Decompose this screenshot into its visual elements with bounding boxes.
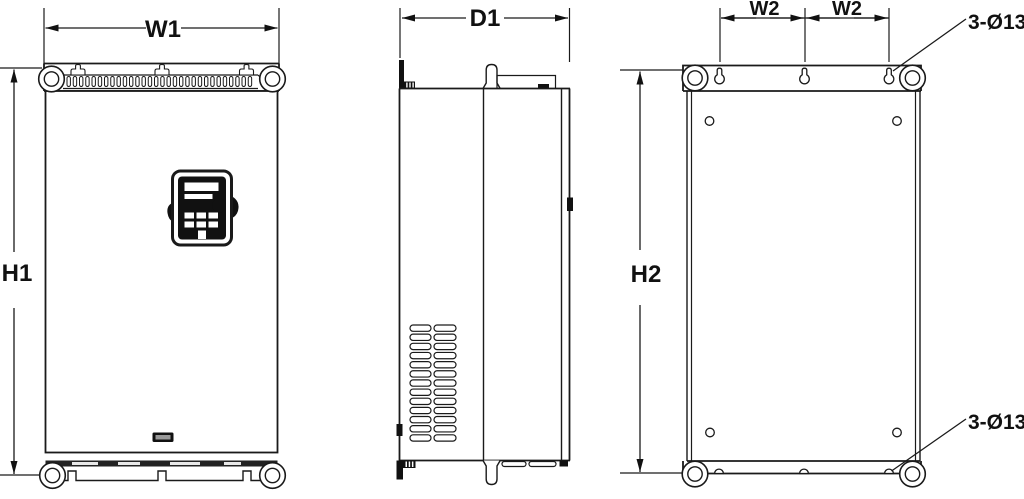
mounting-ring-inner: [45, 468, 59, 482]
screw-hole: [893, 428, 902, 437]
heatsink-vent-slot: [410, 343, 431, 349]
mounting-tab: [71, 65, 85, 76]
dimension-w1: W1: [44, 8, 279, 64]
heatsink-vent-slot: [410, 389, 431, 395]
heatsink-vent-slot: [434, 325, 456, 331]
clamp-slit: [412, 83, 413, 88]
heatsink-vent-slot: [410, 352, 431, 358]
bottom-slot: [529, 462, 556, 467]
heatsink-vent-slot: [410, 407, 431, 413]
heatsink-vent-slot: [410, 435, 431, 441]
heatsink-vent-slot: [434, 334, 456, 340]
heatsink-vent-slot: [434, 389, 456, 395]
heatsink-vent-slot: [434, 435, 456, 441]
keypad-button[interactable]: [197, 222, 207, 228]
heatsink-vent-slot: [434, 371, 456, 377]
label-hole-note-bottom: 3-Ø13: [968, 411, 1024, 434]
mounting-tab: [155, 65, 169, 76]
label-d1: D1: [470, 5, 501, 32]
vent-slot: [136, 77, 139, 87]
side-top-bracket: [399, 60, 404, 89]
mounting-ring-inner: [265, 72, 279, 86]
dimension-d1: D1: [400, 5, 570, 62]
base-band-slot: [118, 462, 140, 465]
vent-slot: [180, 77, 183, 87]
vent-slot: [211, 77, 214, 87]
vent-slot: [92, 77, 95, 87]
rear-top-strip: [683, 66, 921, 92]
keypad-button[interactable]: [209, 222, 219, 228]
rear-view: W2 W2 H2: [620, 0, 1024, 474]
vent-slot: [86, 77, 89, 87]
rear-panel: [687, 91, 920, 461]
vent-slot: [230, 77, 233, 87]
heatsink-vent-slot: [410, 334, 431, 340]
mounting-ring-inner: [44, 72, 58, 86]
dimension-drawing: W1 H1: [0, 0, 1024, 499]
keypad-button[interactable]: [185, 213, 195, 219]
heatsink-vent-slot: [410, 426, 431, 432]
heatsink-vent-slot: [434, 417, 456, 423]
keypad-button[interactable]: [197, 213, 207, 219]
leader-line: [892, 419, 967, 471]
heatsink-vent-slot: [434, 380, 456, 386]
screw-hole: [705, 117, 714, 126]
heatsink-vent-slot: [434, 343, 456, 349]
top-keyhole-tab-profile: [483, 65, 500, 89]
side-top-profile: [399, 60, 570, 89]
front-body: [46, 91, 278, 481]
mounting-ring-inner: [905, 71, 919, 85]
mounting-ring-inner: [688, 71, 702, 85]
base-band-slot: [170, 462, 200, 465]
heatsink-vent-slot: [410, 325, 431, 331]
front-top-bracket: [44, 64, 279, 92]
nameplate: [153, 433, 174, 443]
side-body: [397, 89, 574, 461]
keypad-button[interactable]: [209, 213, 219, 219]
vent-slot: [205, 77, 208, 87]
front-vent-slots: [67, 77, 252, 87]
vent-slot: [73, 77, 76, 87]
base-band-slot: [72, 462, 98, 465]
clamp-slit: [406, 83, 407, 88]
vent-slot: [148, 77, 151, 87]
screw-hole: [706, 428, 715, 437]
vent-slot: [248, 77, 251, 87]
vent-slot: [167, 77, 170, 87]
vent-slot: [223, 77, 226, 87]
clamp-slit: [409, 83, 410, 88]
vent-slot: [242, 77, 245, 87]
side-view: D1: [397, 5, 574, 485]
vent-slot: [192, 77, 195, 87]
heatsink-vent-slot: [410, 398, 431, 404]
bottom-slot: [502, 462, 526, 467]
heatsink-vent-slot: [434, 352, 456, 358]
label-h1: H1: [2, 260, 33, 287]
heatsink-vent-slot: [410, 380, 431, 386]
base-band-slot: [224, 462, 241, 465]
front-mounting-tabs: [71, 65, 254, 76]
heatsink-vent-slot: [434, 407, 456, 413]
heatsink-vent-slot: [434, 426, 456, 432]
vent-slot: [236, 77, 239, 87]
vent-slot: [67, 77, 70, 87]
bottom-hole-notch: [715, 469, 724, 473]
bottom-hole-notch: [800, 469, 809, 473]
vent-slot: [155, 77, 158, 87]
label-w1: W1: [145, 16, 181, 43]
vent-slot: [98, 77, 101, 87]
hole-callout-top: 3-Ø13: [893, 11, 1024, 71]
keypad-display-row2: [185, 194, 213, 199]
back-latch-tab: [567, 198, 573, 212]
vent-slot: [198, 77, 201, 87]
keypad-button[interactable]: [185, 222, 195, 228]
heatsink-vent-slot: [434, 398, 456, 404]
dimension-h1: H1: [0, 68, 42, 475]
heatsink-vent-slot: [434, 362, 456, 368]
vent-slot: [186, 77, 189, 87]
vent-slot: [123, 77, 126, 87]
rear-bottom-strip: [683, 461, 921, 474]
mounting-tab: [240, 65, 254, 76]
vent-slot: [111, 77, 114, 87]
mounting-ring-inner: [688, 467, 702, 481]
vent-slot: [105, 77, 108, 87]
front-latch-tab: [397, 424, 403, 436]
bottom-latch: [560, 461, 569, 467]
clamp-slit: [412, 462, 414, 468]
heatsink-vent-slot: [410, 371, 431, 377]
label-hole-note-top: 3-Ø13: [968, 11, 1024, 34]
mounting-ring-inner: [905, 467, 919, 481]
keypad-knob[interactable]: [212, 199, 226, 213]
heatsink-vent-slot: [410, 417, 431, 423]
leader-line: [893, 19, 966, 71]
vent-slot: [130, 77, 133, 87]
vent-slot: [117, 77, 120, 87]
vent-slot: [80, 77, 83, 87]
label-w2-right: W2: [832, 0, 862, 20]
bottom-keyhole-tab-profile: [483, 461, 500, 485]
heatsink-vent-slot: [410, 362, 431, 368]
front-panel: [46, 91, 278, 453]
vent-slot: [217, 77, 220, 87]
vent-slot: [161, 77, 164, 87]
drawing-canvas: W1 H1: [0, 0, 1024, 499]
side-bottom-profile: [397, 461, 569, 485]
front-base: [46, 461, 278, 481]
label-w2-left: W2: [750, 0, 780, 20]
side-bottom-bracket: [397, 461, 404, 480]
clamp-slit: [409, 462, 411, 468]
dimension-w2: W2 W2: [720, 0, 889, 62]
screw-hole: [893, 117, 902, 126]
keypad-display: [185, 183, 219, 192]
vent-slot: [142, 77, 145, 87]
side-vent-grid: [410, 325, 456, 441]
clamp-slit: [406, 462, 408, 468]
keypad-button[interactable]: [198, 231, 206, 240]
mounting-ring-inner: [265, 468, 279, 482]
label-h2: H2: [631, 261, 662, 288]
base-skirt: [50, 467, 274, 481]
vent-slot: [173, 77, 176, 87]
dimension-h2: H2: [620, 70, 688, 473]
keypad: [167, 171, 238, 245]
nameplate-window: [156, 435, 171, 440]
